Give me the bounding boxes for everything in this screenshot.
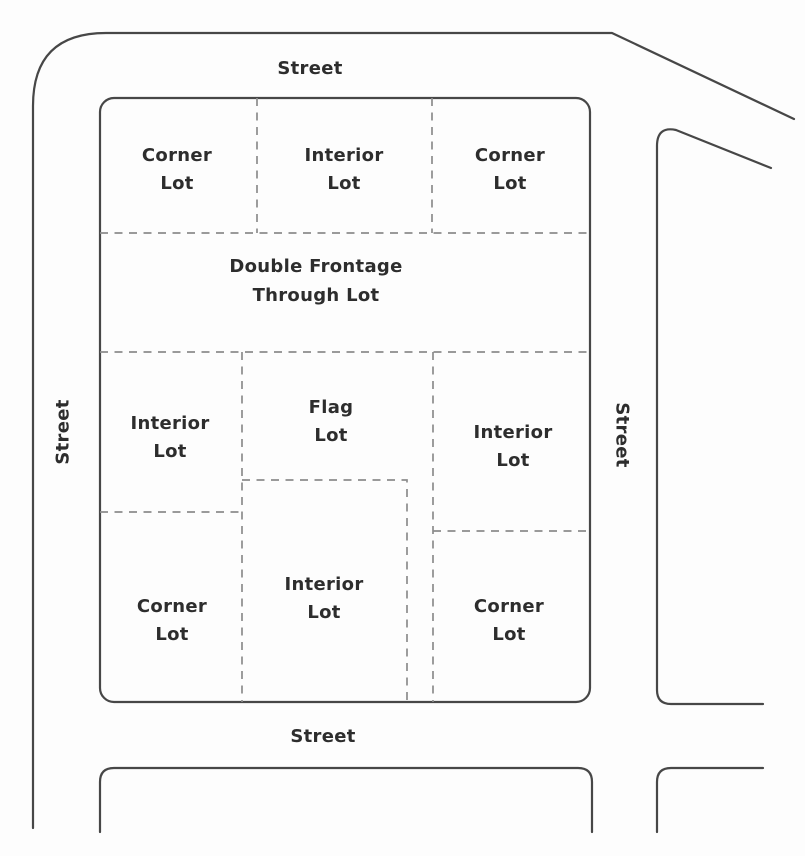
lot-label-line: Lot <box>496 450 529 471</box>
lot-label-line: Interior <box>304 145 383 166</box>
lot-label-line: Interior <box>284 574 363 595</box>
lot-label-line: Lot <box>155 624 188 645</box>
lot-label-corner-bottom-left: Corner Lot <box>137 596 207 645</box>
lot-label-line: Lot <box>160 173 193 194</box>
lot-label-line: Lot <box>493 173 526 194</box>
lot-label-interior-top-center: Interior Lot <box>304 145 383 194</box>
lot-label-line: Lot <box>307 602 340 623</box>
street-label-left: Street <box>53 399 74 464</box>
southeast-block-outline <box>657 768 763 832</box>
lot-label-corner-top-left: Corner Lot <box>142 145 212 194</box>
lot-label-line: Lot <box>492 624 525 645</box>
lot-label-corner-bottom-right: Corner Lot <box>474 596 544 645</box>
lot-label-corner-top-right: Corner Lot <box>475 145 545 194</box>
east-block-outline <box>657 129 771 704</box>
lot-label-line: Through Lot <box>253 285 380 306</box>
diagram-canvas: Street Street Street Street Corner Lot I… <box>0 0 805 856</box>
lot-label-line: Interior <box>130 413 209 434</box>
southwest-block-outline <box>100 768 592 832</box>
lot-label-line: Lot <box>327 173 360 194</box>
lot-label-line: Corner <box>142 145 212 166</box>
lot-label-interior-mid-right: Interior Lot <box>473 422 552 471</box>
street-label-bottom: Street <box>290 726 355 747</box>
lot-label-interior-bottom-center: Interior Lot <box>284 574 363 623</box>
lot-label-line: Corner <box>137 596 207 617</box>
lot-types-diagram: Street Street Street Street Corner Lot I… <box>0 0 805 856</box>
lot-label-interior-mid-left: Interior Lot <box>130 413 209 462</box>
lot-label-line: Corner <box>475 145 545 166</box>
lot-label-line: Interior <box>473 422 552 443</box>
street-label-right: Street <box>612 402 633 467</box>
lot-label-line: Flag <box>309 397 354 418</box>
lot-label-line: Lot <box>153 441 186 462</box>
lot-label-line: Double Frontage <box>229 256 402 277</box>
lot-label-line: Lot <box>314 425 347 446</box>
lot-label-flag: Flag Lot <box>309 397 354 446</box>
lot-label-line: Corner <box>474 596 544 617</box>
lot-label-double-frontage-through: Double Frontage Through Lot <box>229 256 402 306</box>
street-label-top: Street <box>277 58 342 79</box>
